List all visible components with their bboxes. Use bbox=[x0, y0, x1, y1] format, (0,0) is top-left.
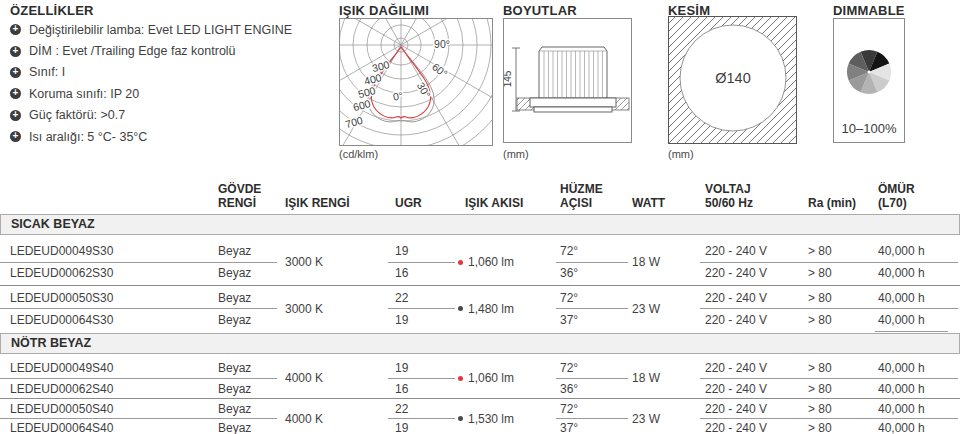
product-code: LEDEUD00064S30 bbox=[10, 313, 113, 327]
plus-circle-icon: + bbox=[10, 67, 21, 78]
ra-value: > 80 bbox=[808, 291, 832, 305]
body-color-value: Beyaz bbox=[218, 266, 251, 280]
flux-dot-icon bbox=[458, 416, 463, 421]
cutout-diameter-label: Ø140 bbox=[715, 70, 750, 86]
column-header-ra: Ra (min) bbox=[808, 196, 856, 210]
row-divider bbox=[556, 378, 628, 379]
ugr-value: 16 bbox=[395, 382, 408, 396]
photometry-title: IŞIK DAĞILIMI bbox=[339, 3, 429, 18]
lifetime-underline bbox=[875, 331, 948, 332]
dimensions-drawing: 145 bbox=[503, 18, 632, 147]
light-color-value: 3000 K bbox=[285, 240, 323, 284]
voltage-value: 220 - 240 V bbox=[705, 402, 767, 416]
voltage-value: 220 - 240 V bbox=[705, 361, 767, 375]
row-divider bbox=[700, 308, 958, 309]
ra-value: > 80 bbox=[808, 361, 832, 375]
table-group: LEDEUD00049S40 Beyaz 19 72° 220 - 240 V … bbox=[0, 357, 960, 399]
beam-angle-value: 37° bbox=[560, 421, 578, 434]
flux-dot-icon bbox=[458, 260, 463, 265]
column-header-flux: IŞIK AKISI bbox=[465, 196, 523, 210]
row-divider bbox=[556, 262, 628, 263]
ugr-value: 19 bbox=[395, 244, 408, 258]
cutout-drawing: Ø140 bbox=[668, 16, 797, 148]
row-divider bbox=[556, 308, 628, 309]
section-band-warm-white: SICAK BEYAZ bbox=[0, 214, 960, 235]
ugr-value: 22 bbox=[395, 291, 408, 305]
plus-circle-icon: + bbox=[10, 110, 21, 121]
height-dimension-label: 145 bbox=[503, 70, 513, 87]
row-divider bbox=[700, 418, 958, 419]
body-color-value: Beyaz bbox=[218, 313, 251, 327]
body-color-value: Beyaz bbox=[218, 291, 251, 305]
column-header-beam-angle: HÜZME AÇISI bbox=[560, 182, 603, 210]
flux-dot-icon bbox=[458, 376, 463, 381]
dimming-wheel-icon bbox=[834, 19, 904, 115]
polar-distribution-diagram: 300 400 500 600 700 90° 60° 30° 0° bbox=[339, 18, 493, 150]
radial-label-700: 700 bbox=[344, 114, 364, 130]
lifetime-value: 40,000 h bbox=[878, 402, 925, 416]
watt-value: 23 W bbox=[632, 400, 660, 434]
dimmable-panel: 10–100% bbox=[833, 18, 905, 143]
row-divider bbox=[0, 378, 277, 379]
column-header-body-color: GÖVDE RENGİ bbox=[218, 182, 261, 210]
lifetime-value: 40,000 h bbox=[878, 244, 925, 258]
lifetime-value: 40,000 h bbox=[878, 382, 925, 396]
flux-value: 1,060 lm bbox=[468, 371, 514, 385]
feature-text: DİM : Evet /Trailing Edge faz kontrolü bbox=[29, 44, 236, 58]
lifetime-value: 40,000 h bbox=[878, 421, 925, 434]
plus-circle-icon: + bbox=[10, 24, 21, 35]
ra-value: > 80 bbox=[808, 244, 832, 258]
feature-item: +DİM : Evet /Trailing Edge faz kontrolü bbox=[10, 40, 292, 61]
dimensions-title: BOYUTLAR bbox=[503, 3, 577, 18]
flux-cell: 1,530 lm bbox=[458, 400, 514, 434]
ugr-value: 16 bbox=[395, 266, 408, 280]
product-code: LEDEUD00050S40 bbox=[10, 402, 113, 416]
table-group: LEDEUD00050S40 Beyaz 22 72° 220 - 240 V … bbox=[0, 400, 960, 434]
body-color-value: Beyaz bbox=[218, 382, 251, 396]
table-group: LEDEUD00050S30 Beyaz 22 72° 220 - 240 V … bbox=[0, 287, 960, 331]
feature-item: +Isı aralığı: 5 °C- 35°C bbox=[10, 126, 292, 147]
product-code: LEDEUD00062S30 bbox=[10, 266, 113, 280]
ugr-value: 22 bbox=[395, 402, 408, 416]
flux-dot-icon bbox=[458, 306, 463, 311]
voltage-value: 220 - 240 V bbox=[705, 313, 767, 327]
section-band-neutral-white: NÖTR BEYAZ bbox=[0, 333, 960, 354]
column-header-voltage: VOLTAJ 50/60 Hz bbox=[705, 182, 753, 210]
voltage-value: 220 - 240 V bbox=[705, 421, 767, 434]
product-code: LEDEUD00062S40 bbox=[10, 382, 113, 396]
features-list: +Değiştirilebilir lamba: Evet LED LIGHT … bbox=[10, 19, 292, 147]
beam-angle-value: 72° bbox=[560, 361, 578, 375]
angle-label-0: 0° bbox=[392, 89, 404, 103]
flux-value: 1,530 lm bbox=[468, 412, 514, 426]
watt-value: 23 W bbox=[632, 287, 660, 331]
row-divider bbox=[556, 418, 628, 419]
product-datasheet: ÖZELLİKLER +Değiştirilebilir lamba: Evet… bbox=[0, 0, 960, 434]
ra-value: > 80 bbox=[808, 313, 832, 327]
table-header-row: GÖVDE RENGİ IŞIK RENGİ UGR IŞIK AKISI HÜ… bbox=[0, 174, 960, 212]
ra-value: > 80 bbox=[808, 402, 832, 416]
voltage-value: 220 - 240 V bbox=[705, 291, 767, 305]
feature-text: Değiştirilebilir lamba: Evet LED LIGHT E… bbox=[29, 23, 292, 37]
row-divider bbox=[0, 308, 277, 309]
row-divider bbox=[388, 378, 455, 379]
product-code: LEDEUD00049S40 bbox=[10, 361, 113, 375]
feature-text: Koruma sınıfı: IP 20 bbox=[29, 87, 139, 101]
row-divider bbox=[0, 262, 277, 263]
voltage-value: 220 - 240 V bbox=[705, 382, 767, 396]
dimming-range-label: 10–100% bbox=[834, 121, 904, 136]
product-code: LEDEUD00064S40 bbox=[10, 421, 113, 434]
radial-label-600: 600 bbox=[352, 97, 372, 113]
beam-angle-value: 72° bbox=[560, 244, 578, 258]
beam-angle-value: 37° bbox=[560, 313, 578, 327]
watt-value: 18 W bbox=[632, 240, 660, 284]
lifetime-value: 40,000 h bbox=[878, 313, 925, 327]
flux-cell: 1,060 lm bbox=[458, 240, 514, 284]
feature-text: Güç faktörü: >0.7 bbox=[29, 108, 125, 122]
flux-cell: 1,480 lm bbox=[458, 287, 514, 331]
body-color-value: Beyaz bbox=[218, 402, 251, 416]
cutout-unit: (mm) bbox=[668, 148, 694, 160]
row-divider bbox=[388, 262, 455, 263]
row-divider bbox=[388, 418, 455, 419]
ugr-value: 19 bbox=[395, 313, 408, 327]
row-divider bbox=[700, 378, 958, 379]
ugr-value: 19 bbox=[395, 361, 408, 375]
product-code: LEDEUD00050S30 bbox=[10, 291, 113, 305]
beam-angle-value: 36° bbox=[560, 382, 578, 396]
light-color-value: 3000 K bbox=[285, 287, 323, 331]
row-divider bbox=[700, 262, 958, 263]
plus-circle-icon: + bbox=[10, 131, 21, 142]
row-divider bbox=[388, 308, 455, 309]
feature-text: Sınıf: I bbox=[29, 65, 65, 79]
column-header-ugr: UGR bbox=[395, 196, 422, 210]
watt-value: 18 W bbox=[632, 357, 660, 399]
photometry-unit: (cd/klm) bbox=[339, 148, 378, 160]
ra-value: > 80 bbox=[808, 421, 832, 434]
features-title: ÖZELLİKLER bbox=[10, 3, 94, 18]
feature-text: Isı aralığı: 5 °C- 35°C bbox=[29, 130, 147, 144]
body-color-value: Beyaz bbox=[218, 244, 251, 258]
light-color-value: 4000 K bbox=[285, 357, 323, 399]
voltage-value: 220 - 240 V bbox=[705, 244, 767, 258]
product-code: LEDEUD00049S30 bbox=[10, 244, 113, 258]
lifetime-value: 40,000 h bbox=[878, 361, 925, 375]
table-group: LEDEUD00049S30 Beyaz 19 72° 220 - 240 V … bbox=[0, 240, 960, 284]
lifetime-value: 40,000 h bbox=[878, 266, 925, 280]
beam-angle-value: 36° bbox=[560, 266, 578, 280]
feature-item: +Koruma sınıfı: IP 20 bbox=[10, 83, 292, 104]
ra-value: > 80 bbox=[808, 266, 832, 280]
feature-item: +Güç faktörü: >0.7 bbox=[10, 105, 292, 126]
feature-item: +Değiştirilebilir lamba: Evet LED LIGHT … bbox=[10, 19, 292, 40]
row-divider bbox=[0, 418, 277, 419]
plus-circle-icon: + bbox=[10, 46, 21, 57]
flux-value: 1,480 lm bbox=[468, 302, 514, 316]
feature-item: +Sınıf: I bbox=[10, 62, 292, 83]
body-color-value: Beyaz bbox=[218, 361, 251, 375]
lifetime-value: 40,000 h bbox=[878, 291, 925, 305]
flux-cell: 1,060 lm bbox=[458, 357, 514, 399]
dimensions-unit: (mm) bbox=[503, 148, 529, 160]
voltage-value: 220 - 240 V bbox=[705, 266, 767, 280]
angle-label-90: 90° bbox=[434, 38, 450, 50]
ugr-value: 19 bbox=[395, 421, 408, 434]
flux-value: 1,060 lm bbox=[468, 255, 514, 269]
column-header-lifetime: ÖMÜR (L70) bbox=[878, 182, 915, 210]
column-header-light-color: IŞIK RENGİ bbox=[285, 196, 350, 210]
dimmable-title: DIMMABLE bbox=[833, 3, 905, 18]
ra-value: > 80 bbox=[808, 382, 832, 396]
beam-angle-value: 72° bbox=[560, 402, 578, 416]
column-header-watt: WATT bbox=[632, 196, 665, 210]
plus-circle-icon: + bbox=[10, 88, 21, 99]
light-color-value: 4000 K bbox=[285, 400, 323, 434]
body-color-value: Beyaz bbox=[218, 421, 251, 434]
beam-angle-value: 72° bbox=[560, 291, 578, 305]
